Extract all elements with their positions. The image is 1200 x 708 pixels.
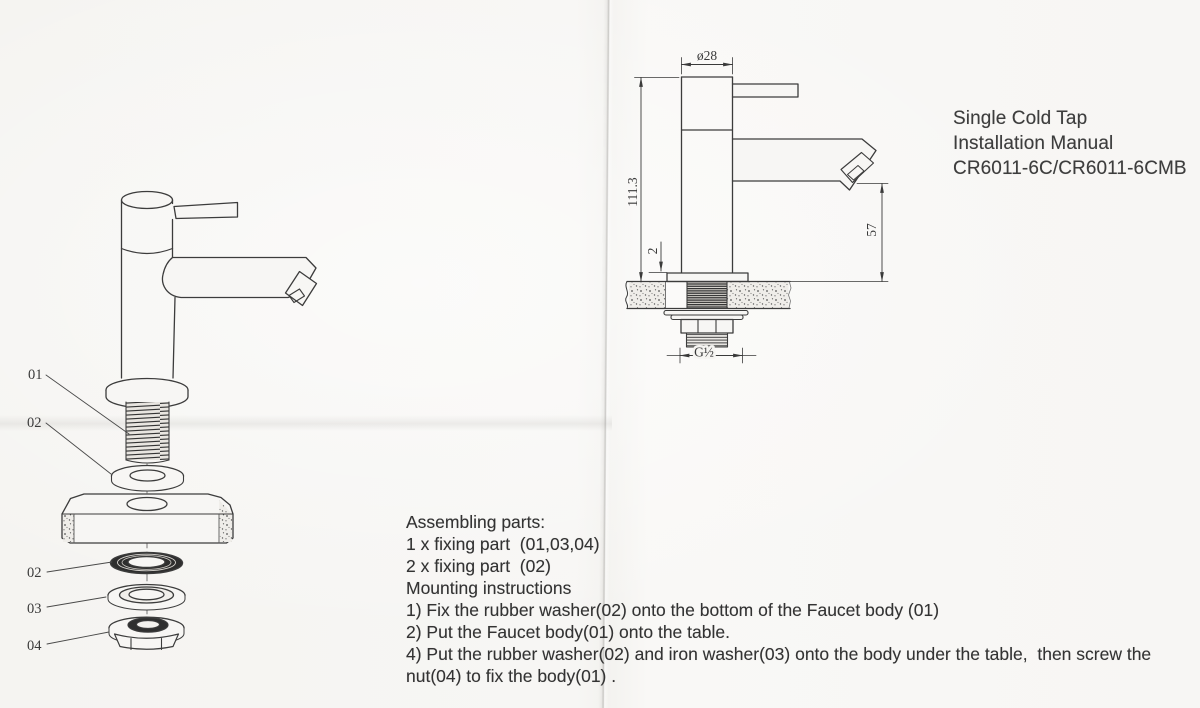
manual-model-codes: CR6011-6C/CR6011-6CMB xyxy=(953,156,1187,181)
leader-line-03 xyxy=(47,597,106,607)
iron-washer-drawing xyxy=(108,585,185,611)
manual-product-name: Single Cold Tap xyxy=(953,106,1187,131)
part-label-02-top: 02 xyxy=(27,415,42,431)
dim-thread-size: G½ xyxy=(667,345,756,364)
leader-line-02-top xyxy=(46,423,111,474)
part-label-01: 01 xyxy=(28,367,43,383)
dim-diameter-label: ø28 xyxy=(697,48,718,63)
manual-doc-type: Installation Manual xyxy=(953,131,1187,156)
title-block: Single Cold Tap Installation Manual CR60… xyxy=(953,106,1187,181)
installed-faucet-body xyxy=(667,77,876,282)
scanned-page: 01 02 02 03 04 xyxy=(0,0,1200,708)
exploded-faucet-body xyxy=(106,192,317,464)
instructions-block: Assembling parts: 1 x fixing part (01,03… xyxy=(406,511,1200,687)
dim-spout-height-label: 57 xyxy=(864,223,879,237)
threaded-shank xyxy=(126,402,169,463)
rubber-washer-bottom-drawing xyxy=(111,553,183,574)
under-table-fittings-drawing xyxy=(664,311,748,348)
flange-nut-drawing xyxy=(109,617,184,649)
mounting-instructions-heading: Mounting instructions xyxy=(406,577,1200,599)
dim-spout-height: 57 xyxy=(790,184,888,282)
base-flange xyxy=(667,273,748,282)
handle-lever xyxy=(733,84,799,97)
leader-line-02-bottom xyxy=(47,562,112,572)
part-label-04: 04 xyxy=(27,638,42,654)
parts-list-item-1: 1 x fixing part (01,03,04) xyxy=(406,533,1200,555)
countertop-slab-drawing xyxy=(62,494,233,543)
dim-flange-label: 2 xyxy=(645,248,660,255)
dim-height-label: 111.3 xyxy=(625,177,640,207)
mounting-step-2: 2) Put the Faucet body(01) onto the tabl… xyxy=(406,621,1200,643)
part-label-03: 03 xyxy=(27,601,42,617)
leader-line-04 xyxy=(47,632,109,644)
mounting-step-1: 1) Fix the rubber washer(02) onto the bo… xyxy=(406,599,1200,621)
part-label-02-bottom: 02 xyxy=(27,565,42,581)
dim-flange-thickness: 2 xyxy=(645,242,667,273)
installed-view-diagram: ø28 111.3 2 57 xyxy=(625,48,888,363)
rubber-washer-top-drawing xyxy=(112,466,184,491)
countertop-section-drawing xyxy=(626,282,791,309)
mounting-step-4: 4) Put the rubber washer(02) and iron wa… xyxy=(406,643,1200,687)
locknut xyxy=(681,320,733,334)
parts-list-item-2: 2 x fixing part (02) xyxy=(406,555,1200,577)
assembling-parts-heading: Assembling parts: xyxy=(406,511,1200,533)
dim-thread-label: G½ xyxy=(694,345,714,360)
dim-diameter: ø28 xyxy=(682,48,733,74)
exploded-view-diagram: 01 02 02 03 04 xyxy=(27,192,317,655)
handle-lever xyxy=(174,203,238,219)
